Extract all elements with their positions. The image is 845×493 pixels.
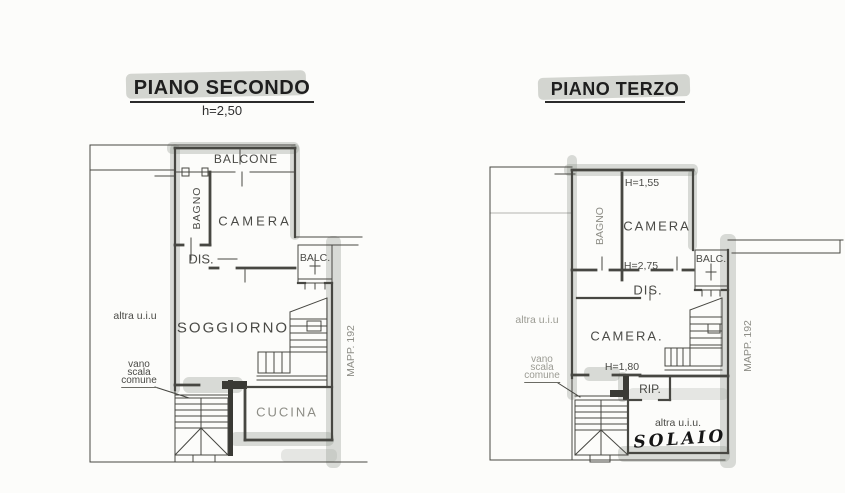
annotation-altra-uiu-secondo: altra u.i.u (113, 311, 156, 322)
floor-plan-secondo: BALCONE BAGNO CAMERA DIS. BALC. SOGGIORN… (85, 140, 375, 470)
internal-stair-terzo (665, 298, 722, 370)
room-label-camera-top-terzo: CAMERA (623, 220, 691, 233)
annotation-mapp-192-terzo: MAPP. 192 (743, 320, 754, 372)
room-label-camera-mid-terzo: CAMERA. (590, 330, 663, 343)
common-stair-secondo (175, 395, 228, 462)
annotation-altra-uiu-bottom-terzo: altra u.i.u. (655, 418, 701, 429)
annotation-h275: H=2,75 (624, 261, 658, 272)
plan-height-note-secondo: h=2,50 (130, 103, 314, 118)
balc-box-terzo (695, 240, 843, 296)
plan-title-secondo: PIANO SECONDO (130, 77, 314, 103)
room-label-bagno-secondo: BAGNO (192, 187, 203, 230)
annotation-comune-terzo: comune (524, 371, 560, 383)
room-label-camera-secondo: CAMERA (218, 215, 292, 228)
annotation-comune-secondo: comune (121, 376, 157, 388)
room-label-soggiorno: SOGGIORNO (177, 321, 289, 336)
room-label-balc-secondo: BALC. (300, 253, 330, 264)
room-label-cucina: CUCINA (256, 406, 318, 419)
annotation-altra-uiu-left-terzo: altra u.i.u (515, 315, 558, 326)
plan-title-terzo: PIANO TERZO (545, 79, 685, 103)
internal-stair-secondo (247, 298, 332, 387)
room-label-dis-terzo: DIS. (633, 284, 662, 297)
room-label-balcone: BALCONE (214, 153, 278, 165)
marker-highlights-terzo (564, 155, 736, 468)
floor-plan-drawing-secondo (85, 140, 375, 470)
room-label-rip-terzo: RIP. (639, 383, 661, 395)
annotation-h155: H=1,55 (625, 178, 659, 189)
scanned-floor-plan-document: PIANO SECONDO h=2,50 PIANO TERZO (0, 0, 845, 493)
annotation-h180: H=1,80 (605, 362, 639, 373)
annotation-mapp-192-secondo: MAPP. 192 (346, 325, 357, 377)
room-label-dis-secondo: DIS. (188, 253, 213, 266)
room-label-bagno-terzo: BAGNO (595, 207, 606, 245)
room-label-balc-terzo: BALC. (696, 254, 726, 265)
floor-plan-terzo: H=1,55 BAGNO CAMERA H=2,75 BALC. DIS. al… (480, 140, 845, 470)
